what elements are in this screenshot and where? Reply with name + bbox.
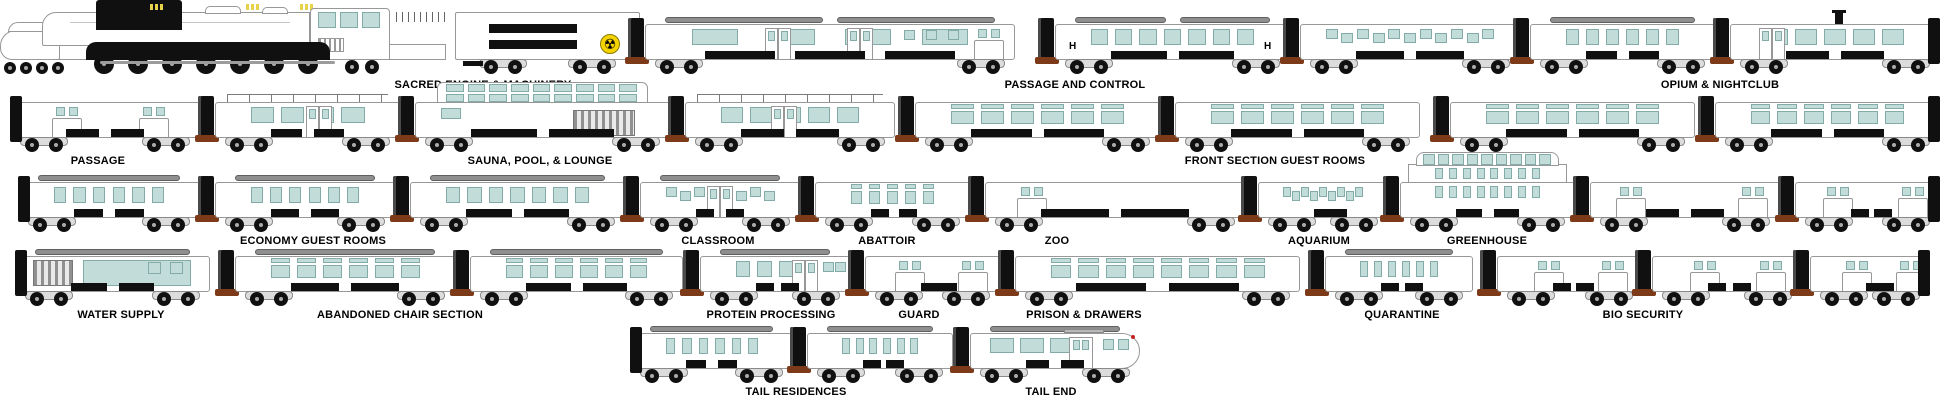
car-window [1139, 29, 1156, 45]
car-window [1244, 258, 1265, 263]
car-window [1516, 111, 1539, 124]
car-window [446, 94, 464, 102]
end-cap [1918, 250, 1930, 296]
car-body [215, 182, 395, 218]
car-window [349, 265, 368, 278]
tender-stripe [489, 24, 577, 33]
safety-valve [305, 4, 308, 10]
wheel-hub [1195, 143, 1199, 147]
wheel-hub [186, 297, 190, 301]
car-window [489, 84, 507, 92]
wheel-hub [674, 374, 678, 378]
car-roof [827, 326, 933, 332]
car-window [1666, 29, 1679, 45]
wheel-hub [835, 223, 839, 227]
wheel-hub [769, 374, 773, 378]
car-window [842, 338, 850, 354]
car-body [235, 256, 455, 292]
car-window [1101, 104, 1124, 109]
car-window [1133, 265, 1154, 278]
car-window [1188, 29, 1205, 45]
car-window [910, 338, 918, 354]
car-window [1755, 187, 1764, 196]
wheel-hub [1517, 297, 1521, 301]
underbody-skirt [1044, 129, 1105, 137]
tender-stripe [489, 40, 577, 49]
car-window [362, 12, 380, 28]
underbody-skirt [1834, 129, 1885, 137]
underbody-skirt [1026, 360, 1049, 368]
car-window [1011, 111, 1034, 124]
car-window [1402, 261, 1410, 277]
wheel-hub [827, 374, 831, 378]
safety-valve [246, 4, 249, 10]
car-window [1078, 265, 1099, 278]
car-window [554, 94, 572, 102]
car-window [912, 261, 921, 270]
car-window [680, 191, 691, 201]
car-window [73, 187, 86, 203]
wheel-hub [1014, 374, 1018, 378]
car-window [69, 107, 78, 116]
car-window [318, 12, 336, 28]
car-roof [235, 175, 375, 181]
wheel-hub [622, 143, 626, 147]
car-door [974, 40, 1004, 60]
wheel-hub [1278, 223, 1282, 227]
car-window [1486, 111, 1509, 124]
underbody-skirt [1733, 283, 1751, 291]
car-window [1292, 191, 1300, 201]
car-roof [38, 175, 180, 181]
wheel-hub [952, 297, 956, 301]
car-window [851, 184, 862, 189]
car-roof [660, 175, 780, 181]
wheel-hub [1916, 65, 1920, 69]
car-window [1504, 186, 1512, 198]
car-window [1633, 187, 1642, 196]
wheel-hub [1472, 65, 1476, 69]
car-window [1551, 261, 1560, 270]
wheel-hub [905, 374, 909, 378]
car-window [1915, 187, 1924, 196]
car-window [1216, 265, 1237, 278]
car-window [289, 187, 301, 203]
underbody-skirt [1579, 129, 1640, 137]
car-window [732, 338, 742, 354]
wheel-hub [514, 297, 518, 301]
car-window [1620, 187, 1629, 196]
car-window [113, 187, 126, 203]
wheel-hub [859, 223, 863, 227]
car-window [1341, 33, 1353, 43]
wheel-hub [1059, 297, 1063, 301]
car-roof [430, 175, 605, 181]
wheel-hub [1425, 297, 1429, 301]
car-window [1361, 104, 1384, 109]
car-roof [650, 326, 773, 332]
car-window [553, 187, 568, 203]
car-window [446, 84, 464, 92]
wheel-hub [1550, 65, 1554, 69]
car-window [1615, 261, 1624, 270]
underbody-skirt [1231, 129, 1292, 137]
underbody-skirt [524, 209, 570, 217]
car-window [1831, 111, 1851, 124]
car-window [1078, 258, 1099, 263]
underbody-skirt [1416, 51, 1464, 59]
car-window [1481, 154, 1493, 165]
car-window [1034, 187, 1043, 196]
car-window [808, 263, 815, 273]
car-window [1301, 104, 1324, 109]
car-door [1898, 198, 1928, 218]
car-window [468, 94, 486, 102]
wheel-hub [1197, 223, 1201, 227]
car-window [1021, 187, 1030, 196]
car-window [981, 104, 1004, 109]
car-window [446, 187, 461, 203]
car-window [1133, 258, 1154, 263]
underbody-skirt [696, 209, 714, 217]
car-window [887, 184, 898, 189]
underbody-skirt [1494, 209, 1520, 217]
car-window [1216, 258, 1237, 263]
wheel-hub [1266, 65, 1270, 69]
radioactive-icon: ☢ [600, 34, 620, 54]
car-window [736, 191, 747, 201]
underbody-skirt [583, 283, 628, 291]
underbody-skirt [1304, 129, 1365, 137]
car-window [1606, 29, 1619, 45]
car-window [1237, 29, 1254, 45]
car-window [1546, 104, 1569, 109]
wheel-hub [650, 374, 654, 378]
car-window [554, 84, 572, 92]
car-window [1189, 258, 1210, 263]
car-window [1626, 29, 1639, 45]
car-window [1357, 29, 1369, 39]
underbody-skirt [686, 360, 706, 368]
underbody-skirt [899, 209, 917, 217]
car-window [736, 261, 751, 277]
wheel-hub [1541, 297, 1545, 301]
wheel-hub [1449, 297, 1453, 301]
car-window [962, 261, 971, 270]
wheel-hub [1754, 297, 1758, 301]
car-window [1777, 111, 1797, 124]
end-cap [18, 176, 30, 222]
wheel-hub [720, 297, 724, 301]
wheel-hub [279, 297, 283, 301]
car-window [1576, 111, 1599, 124]
car-window [1416, 261, 1424, 277]
car-window [323, 258, 342, 263]
car-window [1532, 168, 1540, 179]
car-window [1762, 31, 1769, 41]
loco-steam-dome [205, 6, 241, 14]
underbody-skirt [885, 51, 955, 59]
wheel-hub [885, 297, 889, 301]
car-window [580, 265, 598, 278]
wheel-hub [152, 223, 156, 227]
underbody-skirt [291, 283, 339, 291]
car-roof [255, 249, 435, 255]
vent-slats [33, 260, 73, 286]
car-roof [1550, 17, 1695, 23]
car-window [533, 84, 551, 92]
underbody-skirt [1576, 283, 1594, 291]
car-window [1041, 104, 1064, 109]
wheel-hub [602, 65, 606, 69]
car-window [605, 258, 623, 263]
car-roof [837, 17, 995, 23]
car-window [721, 107, 743, 123]
car-window [152, 187, 165, 203]
car-window [1546, 111, 1569, 124]
car-window [580, 258, 598, 263]
underbody-skirt [1629, 51, 1660, 59]
car-roof [1180, 17, 1271, 23]
wheel-hub [659, 297, 663, 301]
wheel-hub [1610, 223, 1614, 227]
car-door [1738, 198, 1768, 218]
safety-valve [251, 4, 254, 10]
car-door [1598, 272, 1628, 292]
car-window [1435, 186, 1443, 198]
car-window [1241, 104, 1264, 109]
wheel-hub [235, 223, 239, 227]
wheel-hub [1302, 223, 1306, 227]
car-window [856, 338, 864, 354]
car-window [1636, 104, 1659, 109]
underbody-skirt [756, 283, 774, 291]
wheel-hub [1619, 297, 1623, 301]
wheel-hub [1906, 297, 1910, 301]
car-window [309, 187, 321, 203]
car-window [1467, 33, 1479, 43]
wheel-hub [1916, 143, 1920, 147]
car-window [148, 262, 161, 274]
car-window [808, 107, 830, 123]
car-window [1452, 154, 1464, 165]
car-window [926, 30, 937, 40]
car-window [340, 12, 358, 28]
car-window [905, 184, 916, 189]
underbody-skirt [119, 283, 155, 291]
wheel-hub [1099, 65, 1103, 69]
wheel-hub [1759, 143, 1763, 147]
car-window [576, 84, 594, 92]
car-window [575, 187, 590, 203]
wheel-hub [646, 143, 650, 147]
wheel-hub [435, 143, 439, 147]
wheel-hub [35, 297, 39, 301]
car-window [323, 265, 342, 278]
wheel-hub [454, 223, 458, 227]
car-window [1751, 111, 1771, 124]
car-window [511, 94, 529, 102]
car-window [1041, 111, 1064, 124]
car-window [750, 107, 772, 123]
car-window [1518, 186, 1526, 198]
car-window [869, 191, 880, 204]
car-window [904, 30, 915, 40]
car-window [692, 29, 738, 45]
car-window [1091, 29, 1108, 45]
car-door [958, 272, 988, 292]
car-window [835, 262, 846, 272]
underbody-skirt [74, 209, 103, 217]
car-body-upper [1408, 164, 1567, 184]
wheel-hub [922, 223, 926, 227]
wheel-hub [259, 223, 263, 227]
section-label: OPIUM & NIGHTCLUB [1520, 79, 1920, 91]
car-window [322, 109, 329, 119]
car-window [787, 109, 794, 119]
wheel-hub [1815, 223, 1819, 227]
car-window [270, 187, 282, 203]
car-window [887, 191, 898, 204]
car-roof [1075, 17, 1166, 23]
car-window [750, 187, 761, 197]
car-window [1496, 154, 1508, 165]
wheel-hub [1340, 223, 1344, 227]
underbody-skirt [1405, 283, 1423, 291]
car-window [1301, 187, 1309, 197]
car-window [598, 84, 616, 92]
wheel-hub [1092, 374, 1096, 378]
underbody-skirt [1356, 51, 1404, 59]
car-window [1082, 340, 1089, 350]
car-window [271, 265, 290, 278]
underbody-skirt [886, 360, 904, 368]
car-window [923, 184, 934, 189]
car-window [923, 191, 934, 204]
wheel-hub [1892, 65, 1896, 69]
car-window [723, 189, 730, 199]
car-window [1449, 186, 1457, 198]
car-window [347, 187, 359, 203]
car-window [1539, 154, 1551, 165]
loco-chimney-icon [118, 0, 144, 2]
safety-valve [300, 4, 303, 10]
car-window [1213, 29, 1230, 45]
car-window [1271, 111, 1294, 124]
car-window [1606, 111, 1629, 124]
car-window [1101, 111, 1124, 124]
safety-valve [150, 4, 153, 10]
wheel-hub [370, 65, 374, 69]
wheel-hub [1221, 223, 1225, 227]
car-window [1606, 104, 1629, 109]
car-window [1707, 261, 1716, 270]
underbody-skirt [71, 283, 107, 291]
car-window [619, 94, 637, 102]
wheel-hub [1369, 297, 1373, 301]
car-window [975, 261, 984, 270]
wheel-hub [601, 223, 605, 227]
wheel-hub [1671, 143, 1675, 147]
wheel-hub [847, 143, 851, 147]
car-window [1451, 29, 1463, 39]
car-window [251, 107, 274, 123]
underbody-skirt [526, 283, 571, 291]
underbody-skirt [311, 209, 339, 217]
wheel-hub [1219, 143, 1223, 147]
car-window [1374, 261, 1382, 277]
wheel-hub [578, 65, 582, 69]
car-window [1518, 168, 1526, 179]
wheel-hub [959, 143, 963, 147]
car-window [1326, 29, 1338, 39]
wheel-hub [24, 66, 28, 70]
car-body [1325, 256, 1473, 292]
car-window [511, 84, 529, 92]
car-window [710, 189, 717, 199]
car-window [54, 187, 67, 203]
car-window [666, 187, 677, 197]
underbody-skirt [1329, 209, 1347, 217]
wheel-hub [705, 143, 709, 147]
wheel-hub [1778, 297, 1782, 301]
wheel-hub [62, 223, 66, 227]
wheel-hub [1396, 143, 1400, 147]
car-window [764, 191, 775, 201]
wheel-hub [1647, 143, 1651, 147]
car-window [1795, 29, 1817, 45]
car-window [506, 265, 524, 278]
car-window [1346, 191, 1354, 201]
wheel-hub [689, 65, 693, 69]
car-window [349, 258, 368, 263]
wheel-hub [1830, 297, 1834, 301]
underbody-skirt [1179, 51, 1235, 59]
wheel-hub [459, 143, 463, 147]
car-window [506, 258, 524, 263]
wheel-hub [1574, 65, 1578, 69]
underbody-skirt [471, 129, 537, 137]
wheel-hub [1696, 297, 1700, 301]
car-window [281, 107, 304, 123]
wheel-hub [1595, 297, 1599, 301]
car-window [1051, 265, 1072, 278]
car-window [56, 107, 65, 116]
underbody-skirt [1851, 209, 1869, 217]
wheel-hub [152, 143, 156, 147]
car-window [1337, 187, 1345, 197]
car-window [1510, 154, 1522, 165]
car-window [1301, 111, 1324, 124]
car-window [1831, 104, 1851, 109]
car-window [869, 184, 880, 189]
wheel-hub [1916, 223, 1920, 227]
wheel-hub [851, 374, 855, 378]
underbody-skirt [726, 209, 744, 217]
wheel-hub [1345, 297, 1349, 301]
roof-hatch [1064, 329, 1104, 333]
car-window [1490, 186, 1498, 198]
section-label: ECONOMY GUEST ROOMS [113, 235, 513, 247]
car-window [341, 107, 364, 123]
car-window [1355, 187, 1363, 197]
loco-steam-dome [262, 7, 288, 14]
car-window [1449, 168, 1457, 179]
wheel-hub [371, 223, 375, 227]
car-window [630, 265, 648, 278]
car-window [1859, 261, 1868, 270]
wheel-hub [635, 297, 639, 301]
